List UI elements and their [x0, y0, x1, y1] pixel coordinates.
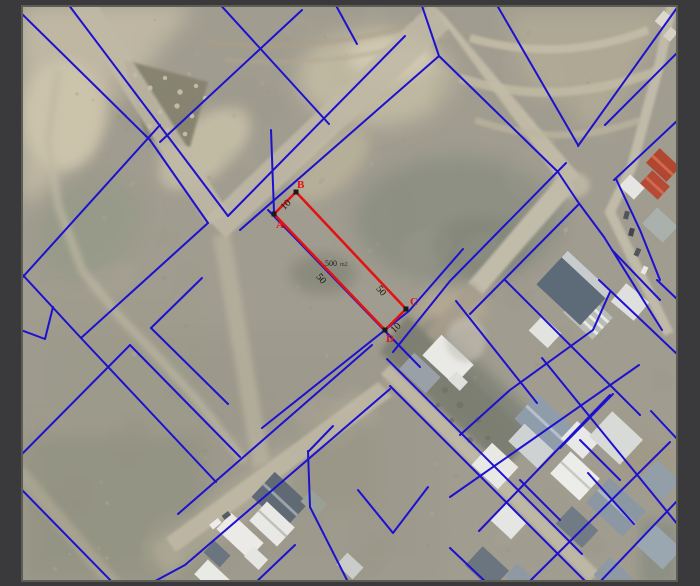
svg-text:A: A: [276, 219, 284, 231]
svg-text:D: D: [386, 333, 394, 345]
svg-text:C: C: [410, 296, 418, 308]
svg-text:500: 500: [325, 259, 337, 268]
svg-text:m2: m2: [340, 262, 348, 268]
svg-text:B: B: [297, 179, 305, 191]
